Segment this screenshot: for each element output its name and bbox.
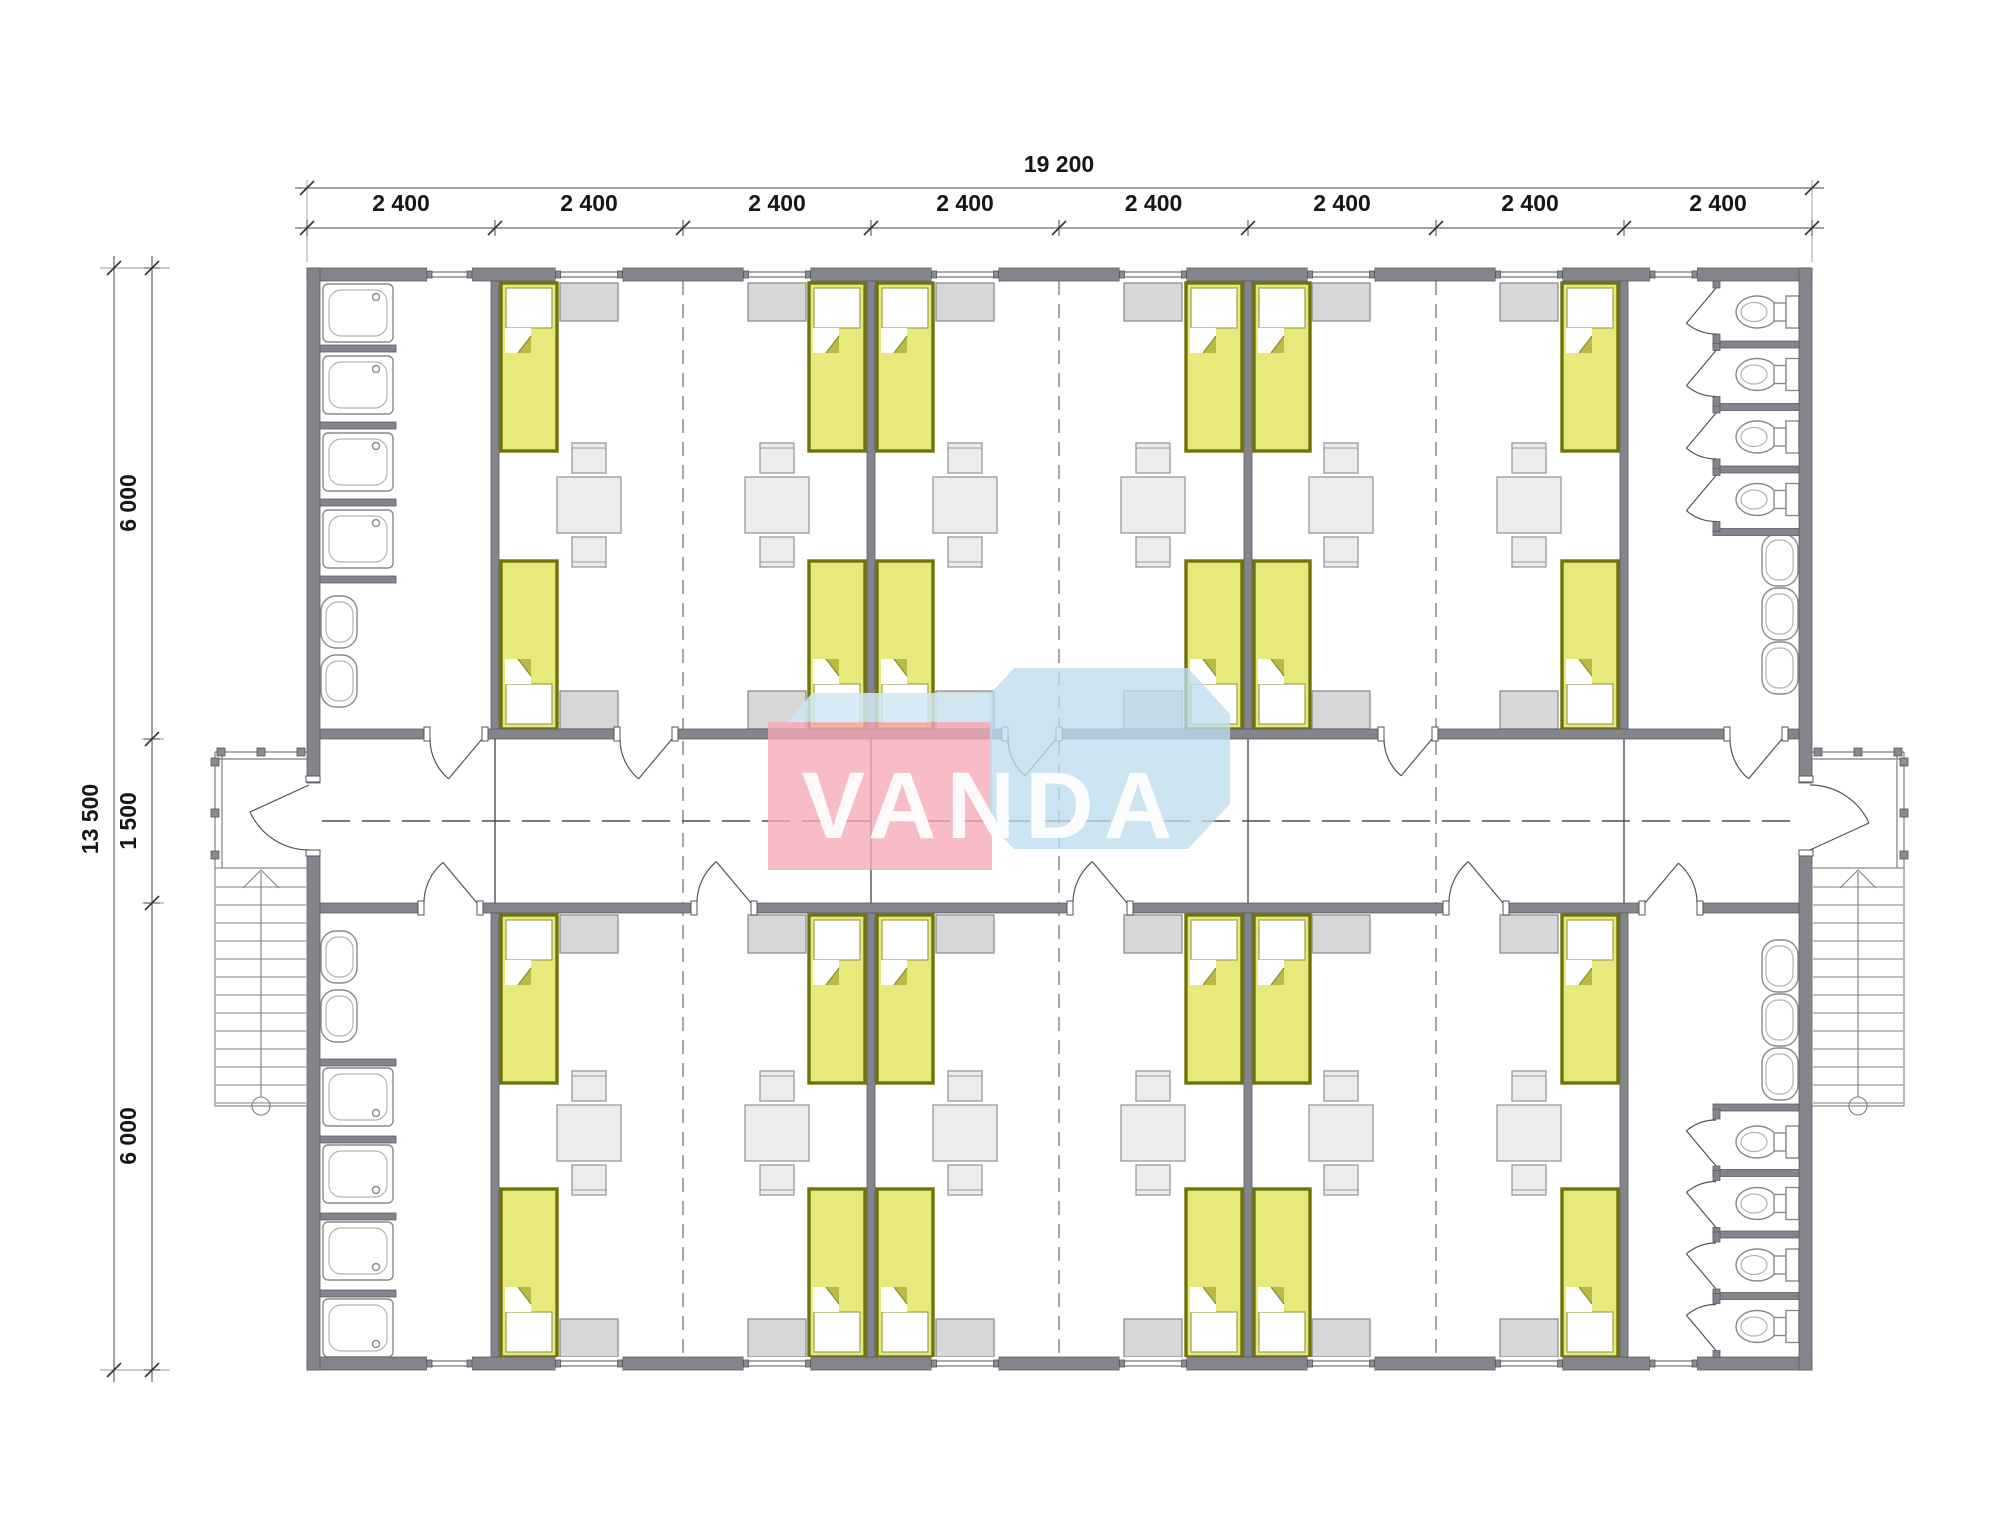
table — [1121, 477, 1185, 533]
window-opening — [427, 1357, 472, 1370]
exterior-wall-bottom — [1697, 1357, 1812, 1370]
window-jamb — [1558, 1360, 1563, 1367]
window-jamb — [556, 271, 561, 278]
corridor-wall-bottom — [751, 903, 1073, 913]
window-jamb — [467, 1360, 472, 1367]
corridor-wall-bottom — [477, 903, 697, 913]
bed-pillow — [1259, 920, 1305, 960]
bed-pillow — [814, 920, 860, 960]
bed-pillow — [1191, 1312, 1237, 1352]
bed-pillow — [814, 1312, 860, 1352]
bed-pillow — [1259, 1312, 1305, 1352]
stall-front-jamb — [1713, 281, 1720, 288]
corridor-wall-bottom — [1697, 903, 1799, 913]
window-jamb — [618, 271, 623, 278]
stall-front-jamb — [1713, 1171, 1720, 1181]
bed-pillow — [882, 288, 928, 328]
vanda-watermark: VANDA — [768, 668, 1230, 870]
bed-pillow — [506, 920, 552, 960]
shower-drain — [373, 443, 380, 450]
bed — [1562, 561, 1618, 729]
shower-drain — [373, 1341, 380, 1348]
window — [556, 268, 623, 281]
window-opening — [1308, 1357, 1375, 1370]
table — [745, 1105, 809, 1161]
corridor-wall-bottom — [1503, 903, 1645, 913]
locker — [936, 283, 994, 321]
door-jamb — [424, 727, 430, 741]
entrance-door-leaf — [250, 785, 309, 812]
toilet-stall-partition — [1713, 466, 1799, 473]
dim-label-left-segment: 6 000 — [115, 474, 141, 532]
window — [427, 268, 472, 281]
stall-door-arc — [1686, 511, 1716, 522]
shower-drain — [373, 520, 380, 527]
porch-post — [1814, 748, 1822, 756]
window-jamb — [618, 1360, 623, 1367]
stall-front-jamb — [1713, 469, 1720, 476]
porch-post — [211, 851, 219, 859]
stall-door-leaf — [1686, 288, 1716, 323]
window-opening — [932, 1357, 999, 1370]
toilet-seat-hinge — [1774, 1318, 1786, 1336]
window — [1120, 268, 1187, 281]
bed-pillow — [1191, 288, 1237, 328]
watermark-text: VANDA — [802, 753, 1183, 859]
toilet — [1736, 1311, 1799, 1343]
window-opening — [1650, 268, 1697, 281]
window — [1650, 1357, 1697, 1370]
locker — [560, 283, 618, 321]
window-opening — [556, 268, 623, 281]
bed-pillow — [882, 1312, 928, 1352]
window-jamb — [1120, 1360, 1125, 1367]
dining-table-group — [1121, 443, 1185, 567]
window-jamb — [1182, 1360, 1187, 1367]
dining-table-group — [557, 1071, 621, 1195]
exterior-wall-bottom — [1563, 1357, 1651, 1370]
toilet-seat-hinge — [1774, 366, 1786, 384]
toilet-tank — [1786, 1311, 1799, 1343]
toilet-tank — [1786, 1249, 1799, 1281]
exterior-wall-top — [1375, 268, 1496, 281]
toilet-stall-partition — [1713, 404, 1799, 411]
window — [427, 1357, 472, 1370]
door-leaf — [1092, 862, 1127, 903]
toilet-stall-partition — [1713, 1293, 1799, 1300]
table — [933, 477, 997, 533]
stall-door-arc — [1686, 448, 1716, 459]
table — [933, 1105, 997, 1161]
stall-front-jamb — [1713, 459, 1720, 469]
window-jamb — [1650, 271, 1655, 278]
dim-label-top-total: 19 200 — [1024, 151, 1094, 177]
window-opening — [1496, 1357, 1563, 1370]
window — [1308, 268, 1375, 281]
stall-front-jamb — [1713, 397, 1720, 407]
door-jamb — [1697, 901, 1703, 915]
window — [556, 1357, 623, 1370]
partition-wall — [1244, 281, 1252, 729]
wash-basin — [317, 990, 357, 1042]
bed — [1254, 915, 1310, 1083]
exterior-wall-top — [1563, 268, 1651, 281]
exterior-wall-top — [472, 268, 556, 281]
stall-front-jamb — [1713, 1351, 1720, 1358]
toilet-stall-partition — [1713, 1170, 1799, 1177]
window-jamb — [427, 271, 432, 278]
dim-label-top-segment: 2 400 — [936, 190, 994, 216]
partition-wall — [1620, 913, 1628, 1357]
window — [1496, 1357, 1563, 1370]
door-jamb — [482, 727, 488, 741]
door-jamb — [1067, 901, 1073, 915]
bed-pillow — [1567, 1312, 1613, 1352]
toilet — [1736, 359, 1799, 391]
door-jamb — [1639, 901, 1645, 915]
dining-table-group — [1497, 1071, 1561, 1195]
bed-pillow — [1259, 684, 1305, 724]
window — [744, 1357, 811, 1370]
door-jamb — [1799, 776, 1813, 782]
shower-stall-partition — [320, 1059, 396, 1066]
toilet-bowl — [1736, 1311, 1778, 1343]
partition-wall — [1244, 913, 1252, 1357]
bed — [501, 915, 557, 1083]
door-swing-arc — [1730, 739, 1749, 779]
shower-drain — [373, 366, 380, 373]
table — [557, 1105, 621, 1161]
stall-door-leaf — [1686, 1192, 1716, 1227]
bed — [1254, 283, 1310, 451]
door-jamb — [614, 727, 620, 741]
exterior-wall-bottom — [472, 1357, 556, 1370]
window-jamb — [1182, 271, 1187, 278]
wash-basin — [317, 931, 357, 983]
door-swing-arc — [424, 862, 443, 903]
corridor-wall-bottom — [1127, 903, 1449, 913]
stall-door-arc — [1686, 1120, 1716, 1131]
bed — [501, 283, 557, 451]
door-swing-arc — [1384, 739, 1401, 776]
wash-basin — [1762, 1048, 1802, 1100]
wash-basin — [1762, 940, 1802, 992]
bed — [877, 915, 933, 1083]
stall-door-leaf — [1686, 351, 1716, 386]
locker — [936, 1319, 994, 1357]
bed — [1562, 915, 1618, 1083]
door-swing-arc — [620, 739, 639, 779]
door-swing-arc — [697, 862, 716, 903]
dim-label-top-segment: 2 400 — [372, 190, 430, 216]
corridor-wall-top — [1432, 729, 1730, 739]
dim-label-top-segment: 2 400 — [1125, 190, 1183, 216]
toilet-bowl — [1736, 359, 1778, 391]
window-jamb — [994, 1360, 999, 1367]
stall-door-arc — [1686, 1243, 1716, 1254]
wash-basin — [317, 596, 357, 648]
toilet-seat-hinge — [1774, 1195, 1786, 1213]
exterior-wall-right — [1799, 268, 1812, 783]
door-jamb — [1799, 850, 1813, 856]
door-jamb — [306, 776, 320, 782]
stall-door-leaf — [1686, 1315, 1716, 1350]
shower-stall-partition — [320, 1213, 396, 1220]
door-jamb — [1782, 727, 1788, 741]
exterior-wall-left — [307, 268, 320, 783]
window-jamb — [1370, 1360, 1375, 1367]
door-swing-arc — [1449, 862, 1468, 903]
dining-table-group — [1309, 1071, 1373, 1195]
dining-table-group — [1121, 1071, 1185, 1195]
locker — [560, 691, 618, 729]
toilet-seat-hinge — [1774, 491, 1786, 509]
door-leaf — [443, 862, 477, 903]
toilet-tank — [1786, 421, 1799, 453]
dining-table-group — [557, 443, 621, 567]
window-jamb — [1308, 1360, 1313, 1367]
locker — [560, 915, 618, 953]
locker — [748, 283, 806, 321]
locker — [936, 915, 994, 953]
porch-post — [1854, 748, 1862, 756]
locker — [1124, 283, 1182, 321]
shower-drain — [373, 1110, 380, 1117]
window-jamb — [932, 271, 937, 278]
corridor-wall-bottom — [320, 903, 424, 913]
exterior-wall-left — [307, 850, 320, 1370]
exterior-wall-top — [1697, 268, 1812, 281]
toilet-bowl — [1736, 1126, 1778, 1158]
dining-table-group — [933, 443, 997, 567]
stall-door-arc — [1686, 1305, 1716, 1316]
bed-pillow — [1567, 920, 1613, 960]
stair-flight — [215, 868, 307, 1115]
window-jamb — [1692, 271, 1697, 278]
partition-wall — [491, 913, 499, 1357]
locker — [1312, 915, 1370, 953]
exterior-wall-bottom — [811, 1357, 932, 1370]
porch-post — [1900, 809, 1908, 817]
toilet-stall-partition — [1713, 341, 1799, 348]
entrance-door-leaf — [1810, 823, 1869, 850]
corridor-wall-top — [320, 729, 430, 739]
window-jamb — [1496, 1360, 1501, 1367]
bed — [501, 561, 557, 729]
floor-plan-drawing: 19 2002 4002 4002 4002 4002 4002 4002 40… — [0, 0, 2000, 1539]
locker — [1500, 691, 1558, 729]
table — [1309, 477, 1373, 533]
toilet-seat-hinge — [1774, 1133, 1786, 1151]
toilet-area-wall — [1713, 1104, 1799, 1111]
toilet-tank — [1786, 484, 1799, 516]
exterior-wall-bottom — [1187, 1357, 1308, 1370]
porch-post — [1900, 851, 1908, 859]
window-opening — [1120, 268, 1187, 281]
floor-plan-page: 19 2002 4002 4002 4002 4002 4002 4002 40… — [0, 0, 2000, 1539]
toilet — [1736, 1126, 1799, 1158]
bed — [1562, 283, 1618, 451]
shower-tray — [323, 1145, 393, 1203]
window — [932, 1357, 999, 1370]
window-opening — [1650, 1357, 1697, 1370]
toilet-bowl — [1736, 484, 1778, 516]
table — [1497, 477, 1561, 533]
door-jamb — [672, 727, 678, 741]
dining-table-group — [745, 1071, 809, 1195]
shower-tray — [323, 1299, 393, 1357]
bed-pillow — [1259, 288, 1305, 328]
window — [1308, 1357, 1375, 1370]
window-jamb — [1370, 271, 1375, 278]
exterior-wall-top — [1187, 268, 1308, 281]
door-swing-arc — [1073, 862, 1092, 903]
toilet-bowl — [1736, 1249, 1778, 1281]
door-jamb — [1127, 901, 1133, 915]
dining-table-group — [1497, 443, 1561, 567]
shower-tray — [323, 1068, 393, 1126]
toilet-tank — [1786, 296, 1799, 328]
exterior-wall-top — [999, 268, 1120, 281]
window-jamb — [744, 1360, 749, 1367]
toilet-tank — [1786, 359, 1799, 391]
window-jamb — [806, 271, 811, 278]
dim-label-left-segment: 6 000 — [115, 1107, 141, 1165]
shower-drain — [373, 1187, 380, 1194]
window-jamb — [994, 271, 999, 278]
bed — [501, 1189, 557, 1357]
toilet — [1736, 421, 1799, 453]
bed-pillow — [1567, 684, 1613, 724]
bed-pillow — [506, 1312, 552, 1352]
stall-door-arc — [1686, 323, 1716, 334]
bed-pillow — [814, 288, 860, 328]
dim-label-top-segment: 2 400 — [1501, 190, 1559, 216]
window-jamb — [1650, 1360, 1655, 1367]
door-jamb — [1378, 727, 1384, 741]
table — [557, 477, 621, 533]
stall-front-jamb — [1713, 1294, 1720, 1304]
wash-basin — [1762, 642, 1802, 694]
stall-door-leaf — [1686, 476, 1716, 511]
locker — [748, 915, 806, 953]
bed — [809, 1189, 865, 1357]
toilet-tank — [1786, 1126, 1799, 1158]
table — [1497, 1105, 1561, 1161]
dining-table-group — [1309, 443, 1373, 567]
wash-basin — [1762, 588, 1802, 640]
locker — [1500, 915, 1558, 953]
stall-door-leaf — [1686, 413, 1716, 448]
window — [1120, 1357, 1187, 1370]
door-jamb — [477, 901, 483, 915]
entrance-door-arc — [1810, 785, 1869, 823]
window-opening — [427, 268, 472, 281]
bed — [1186, 1189, 1242, 1357]
dim-label-top-segment: 2 400 — [560, 190, 618, 216]
bed — [877, 1189, 933, 1357]
stall-front-jamb — [1713, 1232, 1720, 1242]
exterior-wall-top — [811, 268, 932, 281]
window-jamb — [427, 1360, 432, 1367]
window-jamb — [1496, 271, 1501, 278]
partition-wall — [867, 281, 875, 729]
stall-front-jamb — [1713, 522, 1720, 532]
shower-tray — [323, 510, 393, 568]
corridor-wall-top — [482, 729, 620, 739]
door-jamb — [1724, 727, 1730, 741]
window-jamb — [744, 271, 749, 278]
shower-drain — [373, 294, 380, 301]
table — [1121, 1105, 1185, 1161]
window — [1650, 268, 1697, 281]
toilet — [1736, 484, 1799, 516]
locker — [1124, 915, 1182, 953]
window-jamb — [1692, 1360, 1697, 1367]
toilet — [1736, 1249, 1799, 1281]
toilet-bowl — [1736, 1188, 1778, 1220]
window-opening — [744, 268, 811, 281]
bed-pillow — [882, 920, 928, 960]
window-opening — [1496, 268, 1563, 281]
exterior-wall-top — [623, 268, 744, 281]
stall-door-leaf — [1686, 1254, 1716, 1289]
bed-pillow — [1191, 920, 1237, 960]
window-opening — [744, 1357, 811, 1370]
toilet-stall-partition — [1713, 1231, 1799, 1238]
wash-basin — [317, 655, 357, 707]
window-opening — [1120, 1357, 1187, 1370]
bed-pillow — [506, 684, 552, 724]
bed-pillow — [1567, 288, 1613, 328]
bed — [1186, 915, 1242, 1083]
window-opening — [556, 1357, 623, 1370]
door-swing-arc — [430, 739, 449, 779]
stall-front-jamb — [1713, 344, 1720, 351]
bed — [1562, 1189, 1618, 1357]
bed-pillow — [506, 288, 552, 328]
toilet-seat-hinge — [1774, 303, 1786, 321]
shower-stall-partition — [320, 1136, 396, 1143]
shower-stall-partition — [320, 422, 396, 429]
exterior-wall-bottom — [623, 1357, 744, 1370]
locker — [1312, 691, 1370, 729]
locker — [1312, 283, 1370, 321]
stall-door-arc — [1686, 386, 1716, 397]
door-leaf — [1468, 862, 1503, 903]
toilet-seat-hinge — [1774, 428, 1786, 446]
exterior-wall-right — [1799, 850, 1812, 1370]
exterior-wall-top — [307, 268, 427, 281]
locker — [1500, 1319, 1558, 1357]
door-leaf — [639, 739, 672, 779]
porch-post — [217, 748, 225, 756]
window-jamb — [556, 1360, 561, 1367]
window-jamb — [806, 1360, 811, 1367]
shower-drain — [373, 1264, 380, 1271]
window-jamb — [467, 271, 472, 278]
door-jamb — [418, 901, 424, 915]
stair-flight — [1812, 868, 1904, 1115]
door-swing-arc — [1678, 863, 1697, 903]
window — [744, 268, 811, 281]
bed — [809, 915, 865, 1083]
dim-label-top-segment: 2 400 — [1689, 190, 1747, 216]
window-jamb — [1120, 271, 1125, 278]
shower-stall-partition — [320, 499, 396, 506]
stall-front-jamb — [1713, 406, 1720, 413]
shower-stall-partition — [320, 345, 396, 352]
